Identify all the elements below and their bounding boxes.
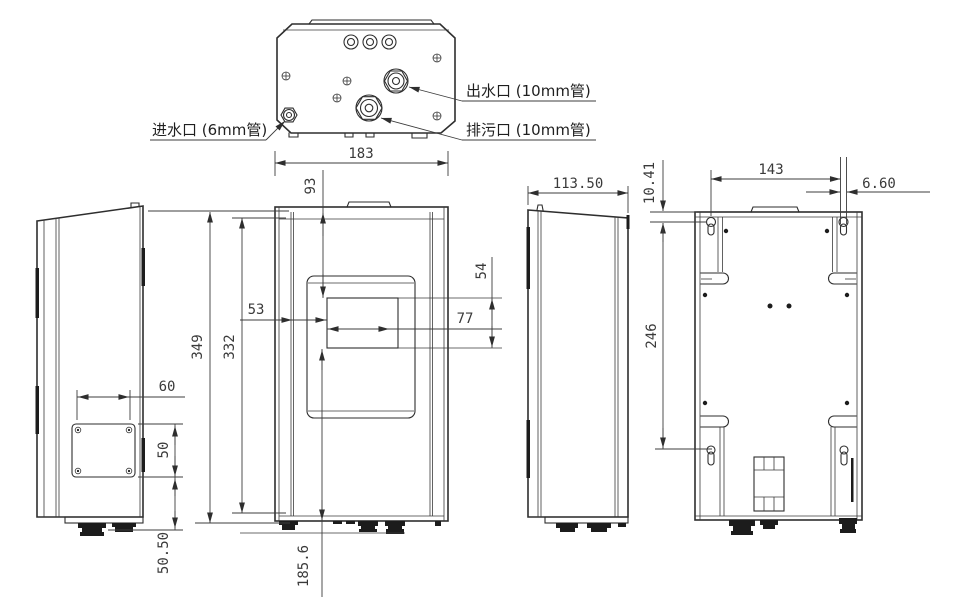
dim-top-to-window: 93 (303, 170, 323, 298)
mounting-rails (701, 217, 856, 516)
outlet-fitting (384, 69, 408, 93)
outlet-label: 出水口 (10mm管) (466, 82, 591, 100)
drain-leader-line (381, 118, 462, 140)
dim-front-width: 183 (275, 146, 448, 176)
outlet-leader-line (409, 87, 462, 101)
left-bottom-connectors (78, 523, 136, 536)
svg-text:6.60: 6.60 (862, 176, 896, 192)
svg-text:185.6: 185.6 (296, 545, 312, 587)
svg-text:10.41: 10.41 (642, 162, 658, 204)
dim-body-height: 332 (222, 218, 286, 513)
dim-window-to-bottom: 185.6 (296, 349, 322, 597)
drain-label: 排污口 (10mm管) (466, 121, 591, 139)
engineering-drawing: 出水口 (10mm管) 排污口 (10mm管) 进水口 (6mm管) (0, 0, 972, 602)
svg-text:246: 246 (644, 323, 660, 348)
drawing-canvas: 出水口 (10mm管) 排污口 (10mm管) 进水口 (6mm管) (0, 0, 972, 602)
dim-panel-width: 60 (77, 379, 185, 420)
top-view (277, 20, 455, 138)
svg-text:50: 50 (156, 442, 172, 459)
dim-overall-height: 349 (148, 211, 290, 523)
dim-mount-top: 10.41 (642, 160, 707, 242)
front-view (240, 202, 502, 534)
right-bottom-connectors (556, 523, 626, 532)
svg-text:332: 332 (222, 334, 238, 359)
svg-text:143: 143 (758, 162, 783, 178)
inlet-fitting (281, 108, 297, 122)
svg-text:183: 183 (348, 146, 373, 162)
vent-holes (344, 35, 396, 49)
inlet-label: 进水口 (6mm管) (152, 121, 267, 139)
svg-text:50.50: 50.50 (156, 532, 172, 574)
left-side-view (36, 203, 146, 536)
screw-icons (282, 54, 441, 120)
svg-text:113.50: 113.50 (553, 176, 604, 192)
dim-mount-span-v: 246 (644, 223, 712, 449)
svg-text:93: 93 (303, 178, 319, 195)
keyhole-bottom-right (840, 446, 848, 465)
keyhole-top-left (707, 218, 716, 236)
dim-window-left: 53 (240, 302, 327, 320)
screw-dots (703, 229, 849, 405)
svg-text:349: 349 (190, 334, 206, 359)
svg-text:54: 54 (474, 263, 490, 280)
svg-text:53: 53 (248, 302, 265, 318)
side-access-panel (72, 424, 135, 477)
dim-slot-width: 6.60 (806, 157, 930, 224)
svg-text:60: 60 (159, 379, 176, 395)
dimensions: 183 93 54 77 53 (77, 146, 930, 597)
display-window (327, 298, 398, 348)
back-view (695, 207, 862, 535)
terminal-block (754, 457, 784, 511)
dim-window-height: 54 (474, 257, 492, 348)
svg-text:77: 77 (457, 311, 474, 327)
drain-fitting (356, 95, 382, 121)
port-labels: 出水口 (10mm管) 排污口 (10mm管) 进水口 (6mm管) (150, 82, 596, 140)
dim-mount-span-h: 143 (711, 162, 841, 216)
inlet-leader-line (266, 121, 285, 140)
right-side-view (527, 205, 630, 532)
